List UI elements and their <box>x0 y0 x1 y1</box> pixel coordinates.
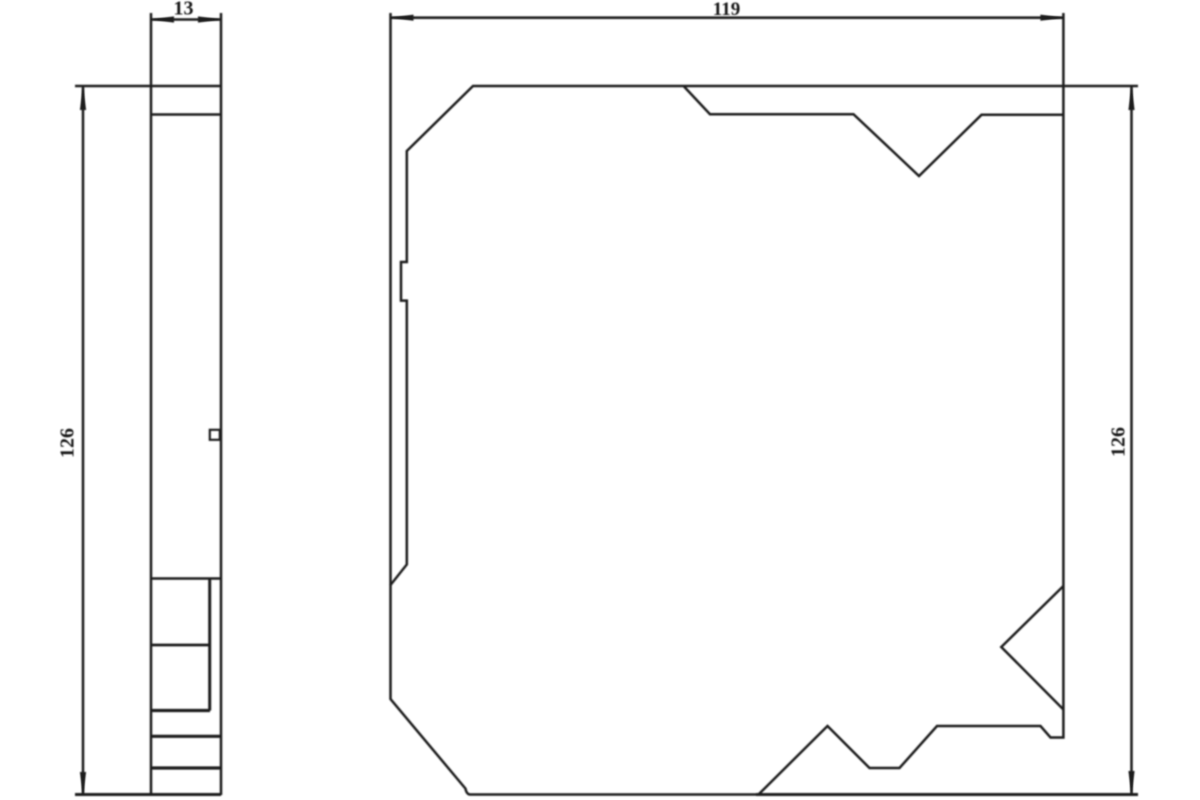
svg-text:126: 126 <box>1108 427 1130 457</box>
svg-text:126: 126 <box>57 428 79 458</box>
svg-text:119: 119 <box>713 0 740 20</box>
svg-text:13: 13 <box>174 0 194 20</box>
